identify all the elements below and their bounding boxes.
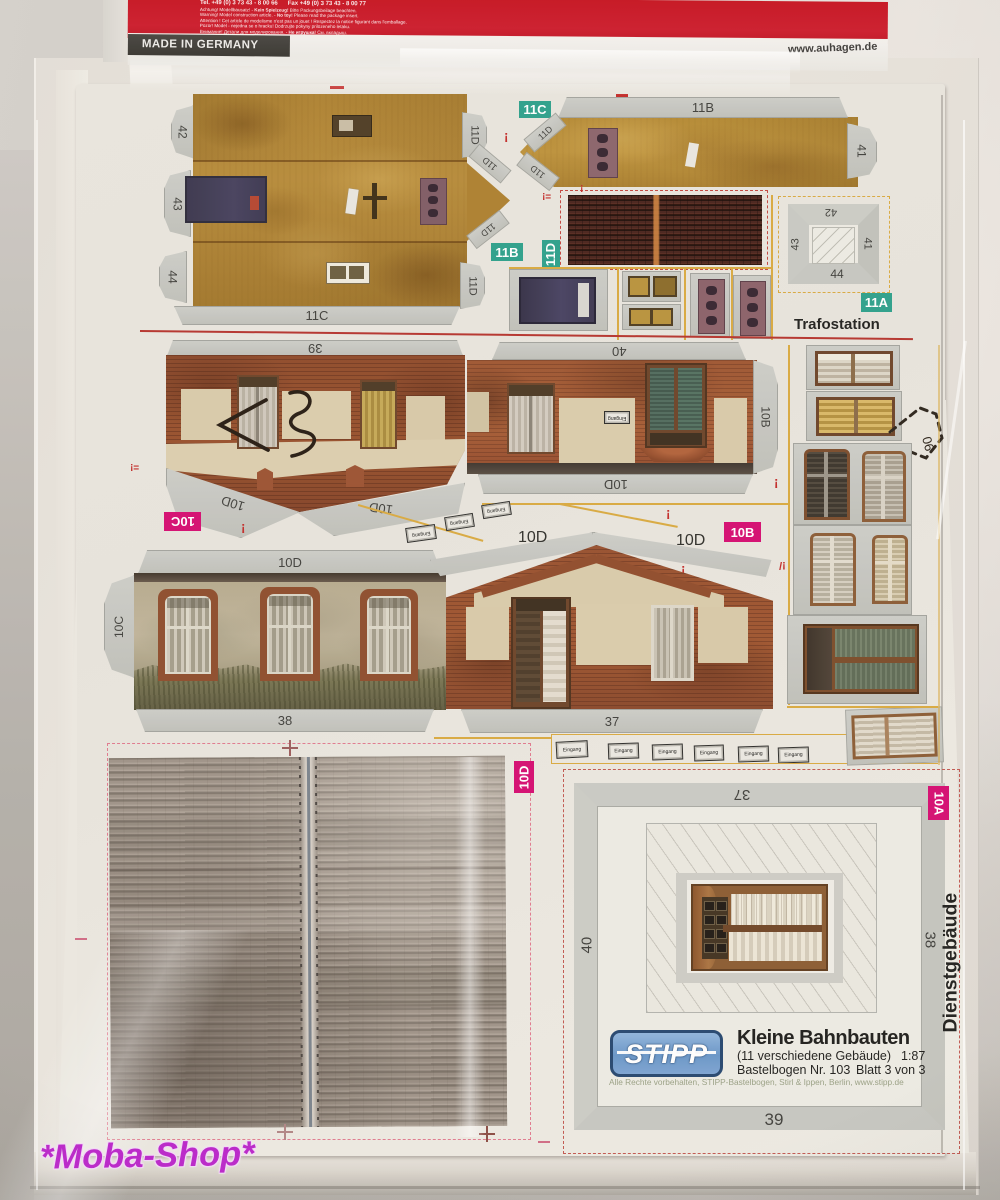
svg-text:06: 06 xyxy=(919,435,937,453)
